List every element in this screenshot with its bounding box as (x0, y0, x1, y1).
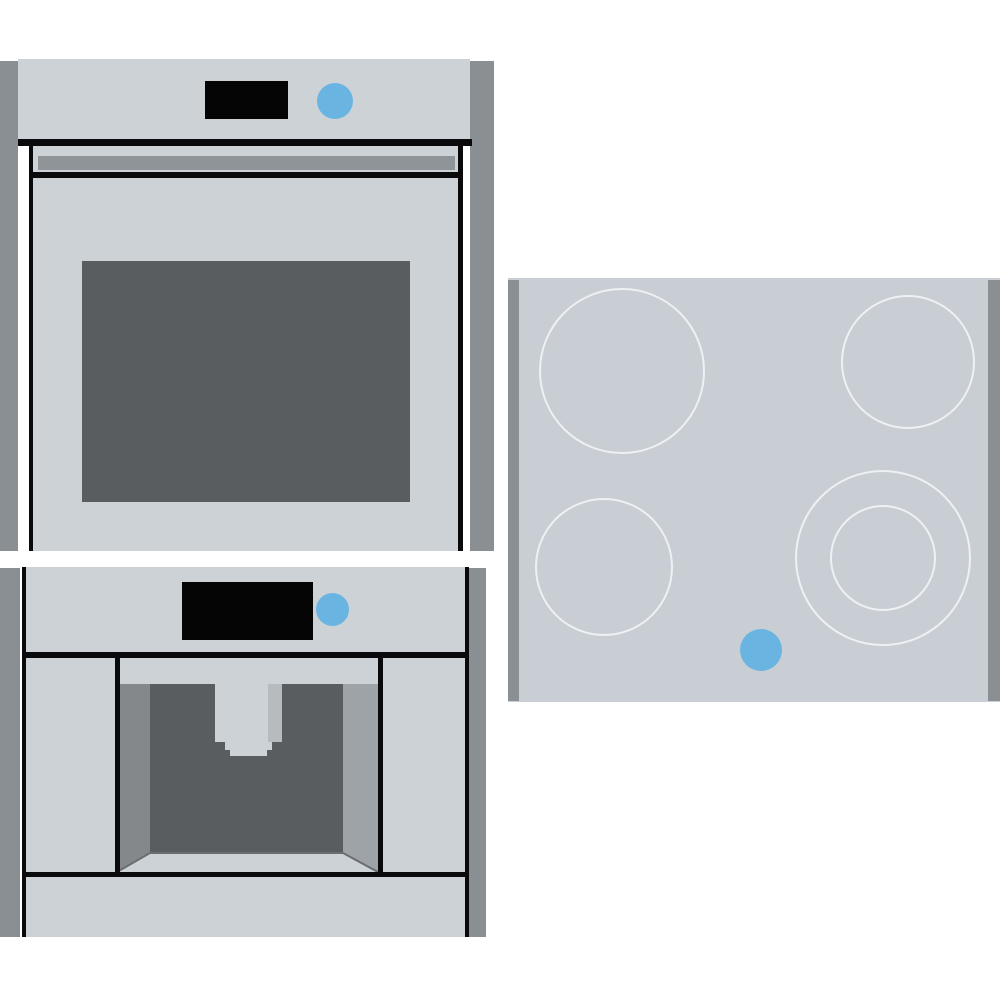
oven-door (33, 178, 458, 551)
oven-door-window (82, 261, 410, 502)
oven-cabinet-side-right (470, 61, 494, 551)
cooktop-power-dot[interactable] (740, 629, 782, 671)
coffee-display (182, 582, 313, 640)
coffee-machine (0, 567, 486, 937)
oven-control-panel (18, 59, 470, 139)
coffee-recess-top-band (120, 658, 378, 684)
coffee-recess-floor (120, 853, 378, 872)
coffee-left-panel (26, 658, 115, 872)
burner-front-right-outer (796, 471, 970, 645)
coffee-drawer-panel (26, 877, 465, 937)
oven-cabinet-side-left (0, 61, 18, 551)
burner-back-right (842, 296, 974, 428)
coffee-recess-right-wall (343, 684, 378, 872)
oven-display (205, 81, 288, 119)
burner-back-left (540, 289, 704, 453)
coffee-recess-left-wall (120, 684, 150, 872)
coffee-cabinet-side-left (0, 568, 20, 937)
burner-front-left (536, 499, 672, 635)
coffee-power-knob[interactable] (316, 593, 349, 626)
oven-power-knob[interactable] (317, 83, 353, 119)
coffee-cup-recess (120, 658, 378, 872)
oven-door-frame-right (458, 146, 463, 551)
oven-control-separator (18, 139, 472, 146)
burner-front-right-inner (831, 506, 935, 610)
cooktop (508, 278, 1000, 702)
oven-door-handle (38, 156, 455, 170)
coffee-control-panel (26, 567, 465, 652)
coffee-frame-right (465, 567, 469, 937)
coffee-cabinet-side-right (469, 568, 486, 937)
wall-oven (0, 59, 494, 552)
coffee-recess-frame-right (378, 658, 383, 872)
appliance-illustration (0, 0, 1000, 1000)
coffee-spout-shading (268, 684, 282, 742)
coffee-right-panel (383, 658, 465, 872)
